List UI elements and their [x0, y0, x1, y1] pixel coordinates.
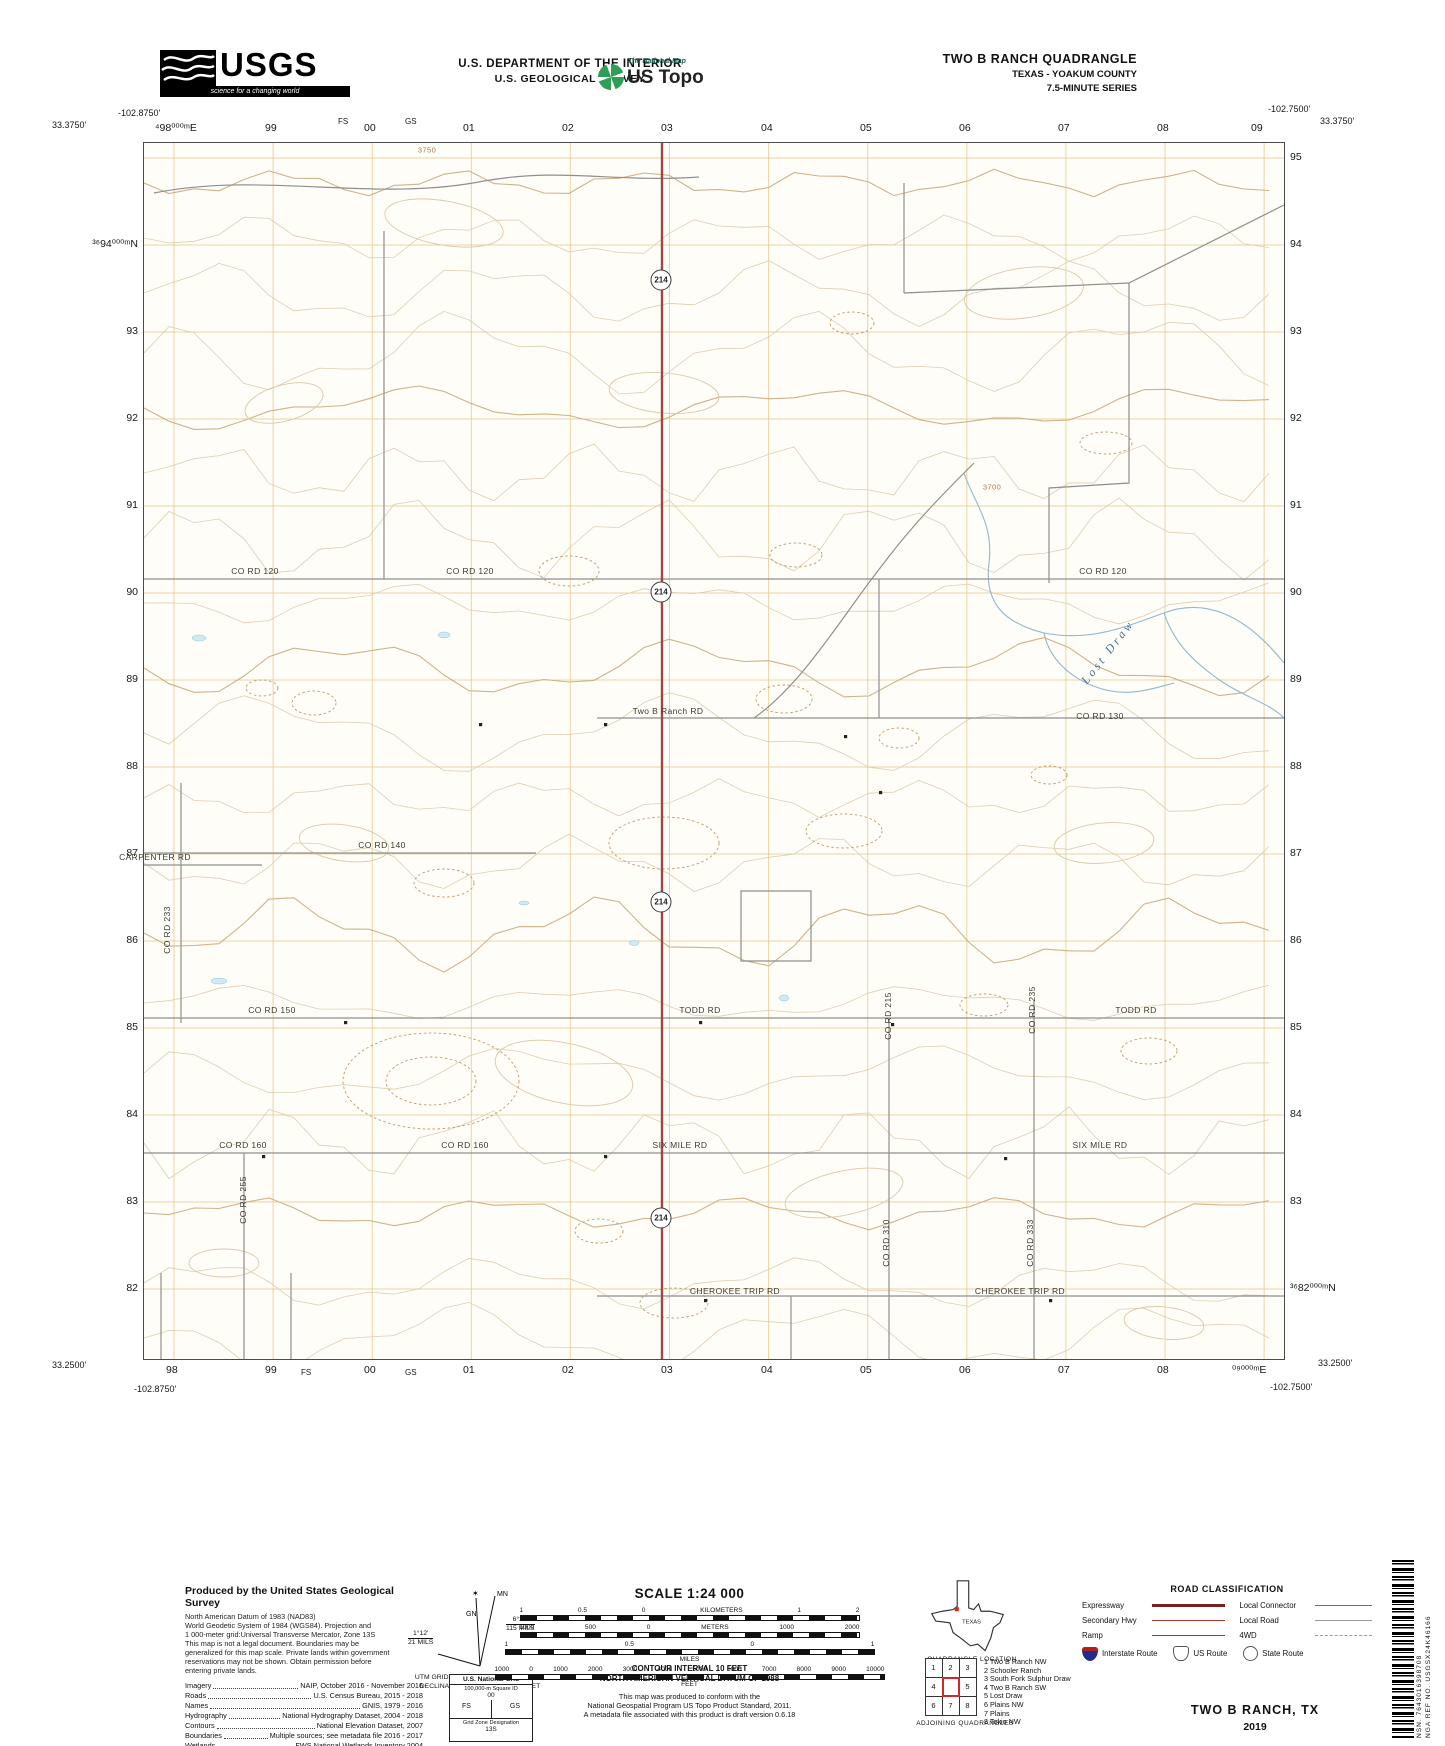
credits-line: This map is not a legal document. Bounda…: [185, 1639, 423, 1648]
grid-label-right: 87: [1290, 847, 1302, 859]
adjoining-cell: 8: [959, 1696, 977, 1716]
grid-label-top: 09: [1251, 122, 1263, 134]
production-credits: Produced by the United States Geological…: [185, 1585, 423, 1746]
corner-coord-tl-lon: -102.8750': [118, 108, 160, 118]
route-shield-legend: Interstate RouteUS RouteState Route: [1082, 1646, 1372, 1661]
state-route-legend: State Route: [1243, 1646, 1303, 1661]
grid-label-left: 85: [58, 1021, 138, 1033]
credits-source-row: ImageryNAIP, October 2016 - November 201…: [185, 1681, 423, 1691]
grid-label-top: 05: [860, 122, 872, 134]
grid-north-label: GN: [466, 1611, 477, 1618]
gn-declination: 1°12' 21 MILS: [408, 1630, 433, 1647]
usng-zone-label: Grid Zone Designation: [450, 1718, 532, 1726]
corner-coord-br-lon: -102.7500': [1270, 1382, 1312, 1392]
credits-line: World Geodetic System of 1984 (WGS84). P…: [185, 1621, 423, 1630]
credits-line: 1 000-meter grid:Universal Transverse Me…: [185, 1630, 423, 1639]
us-shield-icon: [1173, 1646, 1189, 1661]
credits-source-row: RoadsU.S. Census Bureau, 2015 - 2018: [185, 1691, 423, 1701]
corner-coord-tl-lat: 33.3750': [52, 120, 86, 130]
standard-note-line: This map was produced to conform with th…: [492, 1692, 887, 1701]
corner-coord-br-lat: 33.2500': [1318, 1358, 1352, 1368]
grid-label-right: 84: [1290, 1108, 1302, 1120]
texas-label: TEXAS: [962, 1620, 981, 1626]
grid-label-right: 86: [1290, 934, 1302, 946]
grid-label-left: 90: [58, 586, 138, 598]
adjoining-center-cell: [942, 1677, 960, 1697]
grid-label-left: 91: [58, 499, 138, 511]
grid-label-top: ⁴98⁰⁰⁰ᵐE: [155, 122, 197, 134]
contour-interval-note: CONTOUR INTERVAL 10 FEETNORTH AMERICAN V…: [492, 1664, 887, 1684]
credits-source-row: BoundariesMultiple sources; see metadata…: [185, 1731, 423, 1741]
road-class-row: ExpresswayLocal Connector: [1082, 1601, 1372, 1610]
contour-note-line: CONTOUR INTERVAL 10 FEET: [492, 1664, 887, 1674]
grid-label-left: ³⁶94⁰⁰⁰ᵐN: [58, 238, 138, 250]
standard-note-line: A metadata file associated with this pro…: [492, 1710, 887, 1719]
grid-label-right: 83: [1290, 1195, 1302, 1207]
product-standard-note: This map was produced to conform with th…: [492, 1692, 887, 1719]
corner-coord-tr-lat: 33.3750': [1320, 116, 1354, 126]
usng-zone: 13S: [450, 1726, 532, 1733]
grid-label-top: 03: [661, 122, 673, 134]
grid-label-left: 87: [58, 847, 138, 859]
usng-square-fs: FS: [462, 1703, 471, 1710]
barcode: [1392, 1560, 1414, 1738]
adjoining-cell: 5: [959, 1677, 977, 1697]
grid-label-top: FS: [338, 117, 348, 126]
usgs-waves-icon: [160, 50, 216, 86]
scale-bar: 10.501MILES: [505, 1641, 875, 1663]
interstate-route-legend: Interstate Route: [1082, 1647, 1157, 1661]
grid-label-top: 00: [364, 122, 376, 134]
grid-label-right: 94: [1290, 238, 1302, 250]
adjoining-quadrangles-caption: ADJOINING QUADRANGLES: [905, 1720, 1025, 1727]
grid-label-bottom: 02: [562, 1364, 574, 1376]
adjoining-quadrangles-grid: 12345678: [925, 1658, 976, 1715]
grid-label-right: 89: [1290, 673, 1302, 685]
adjoining-cell: 4: [925, 1677, 943, 1697]
us-route-legend: US Route: [1173, 1646, 1227, 1661]
topo-map-graphic: [144, 143, 1284, 1359]
credits-line: reservations may not be shown. Obtain pe…: [185, 1657, 423, 1666]
grid-label-right: 92: [1290, 412, 1302, 424]
grid-label-bottom: 06: [959, 1364, 971, 1376]
grid-label-left: 93: [58, 325, 138, 337]
grid-label-bottom: 99: [265, 1364, 277, 1376]
grid-label-right: 85: [1290, 1021, 1302, 1033]
usgs-tagline: science for a changing world: [160, 86, 350, 97]
adjoining-cell: 7: [942, 1696, 960, 1716]
scale-bar: 10.50KILOMETERS12: [520, 1607, 860, 1621]
credits-sources: ImageryNAIP, October 2016 - November 201…: [185, 1681, 423, 1746]
road-classification-legend: ROAD CLASSIFICATION ExpresswayLocal Conn…: [1082, 1584, 1372, 1661]
corner-coord-bl-lat: 33.2500': [52, 1360, 86, 1370]
quad-name: TWO B RANCH QUADRANGLE: [835, 52, 1137, 66]
nga-ref-number: NGA REF NO. USGSX24K46166: [1425, 1560, 1432, 1738]
grid-label-left: 82: [58, 1282, 138, 1294]
standard-note-line: National Geospatial Program US Topo Prod…: [492, 1701, 887, 1710]
quadrangle-title: TWO B RANCH QUADRANGLE TEXAS - YOAKUM CO…: [835, 52, 1137, 94]
ustopo-label: US Topo: [627, 67, 704, 89]
road-class-row: Ramp4WD: [1082, 1631, 1372, 1640]
adjoining-cell: 3: [959, 1658, 977, 1678]
grid-label-right: 88: [1290, 760, 1302, 772]
quad-state-county: TEXAS - YOAKUM COUNTY: [835, 69, 1137, 80]
grid-label-bottom: ⁰⁹⁰⁰⁰ᵐE: [1232, 1364, 1266, 1376]
credits-source-row: HydrographyNational Hydrography Dataset,…: [185, 1711, 423, 1721]
grid-label-left: 88: [58, 760, 138, 772]
adjoining-cell: 6: [925, 1696, 943, 1716]
corner-coord-tr-lon: -102.7500': [1268, 104, 1310, 114]
grid-label-right: 90: [1290, 586, 1302, 598]
dept-line2: U.S. GEOLOGICAL SURVEY: [360, 73, 780, 85]
sheet-year: 2019: [1105, 1721, 1405, 1733]
grid-label-top: 07: [1058, 122, 1070, 134]
grid-label-right: ³⁶82⁰⁰⁰ᵐN: [1290, 1282, 1336, 1294]
credits-lines: North American Datum of 1983 (NAD83)Worl…: [185, 1612, 423, 1675]
grid-label-bottom: 08: [1157, 1364, 1169, 1376]
usgs-logo: USGS science for a changing world: [160, 50, 350, 96]
national-map-label: The National Map: [628, 58, 686, 65]
scale-bar: 10005000METERS10002000: [520, 1624, 860, 1638]
grid-label-bottom: 01: [463, 1364, 475, 1376]
road-class-title: ROAD CLASSIFICATION: [1082, 1584, 1372, 1594]
grid-label-right: 91: [1290, 499, 1302, 511]
grid-label-top: 02: [562, 122, 574, 134]
grid-label-bottom: GS: [405, 1368, 417, 1377]
state-shield-icon: [1243, 1646, 1258, 1661]
usgs-topo-sheet: USGS science for a changing world U.S. D…: [0, 0, 1445, 1746]
grid-label-left: 86: [58, 934, 138, 946]
grid-label-top: 08: [1157, 122, 1169, 134]
credits-title: Produced by the United States Geological…: [185, 1585, 423, 1609]
grid-label-bottom: 07: [1058, 1364, 1070, 1376]
true-north-star: ✶: [472, 1589, 479, 1598]
grid-label-top: 06: [959, 122, 971, 134]
grid-label-bottom: 00: [364, 1364, 376, 1376]
interstate-shield-icon: [1082, 1647, 1098, 1661]
road-class-rows: ExpresswayLocal ConnectorSecondary HwyLo…: [1082, 1601, 1372, 1640]
grid-label-bottom: 05: [860, 1364, 872, 1376]
adjoining-quadrangles-list: 1 Two B Ranch NW2 Schooler Ranch3 South …: [984, 1658, 1114, 1727]
credits-line: North American Datum of 1983 (NAD83): [185, 1612, 423, 1621]
adjoining-cell: 2: [942, 1658, 960, 1678]
road-class-row: Secondary HwyLocal Road: [1082, 1616, 1372, 1625]
dept-line1: U.S. DEPARTMENT OF THE INTERIOR: [360, 58, 780, 70]
credits-source-row: ContoursNational Elevation Dataset, 2007: [185, 1721, 423, 1731]
usgs-wordmark: USGS: [220, 46, 318, 84]
quad-series: 7.5-MINUTE SERIES: [835, 83, 1137, 94]
grid-label-right: 93: [1290, 325, 1302, 337]
grid-label-left: 92: [58, 412, 138, 424]
grid-label-bottom: 04: [761, 1364, 773, 1376]
grid-label-left: 83: [58, 1195, 138, 1207]
grid-label-top: 01: [463, 122, 475, 134]
grid-label-right: 95: [1290, 151, 1302, 163]
texas-outline: TEXAS: [912, 1580, 1032, 1654]
scale-title: SCALE 1:24 000: [492, 1586, 887, 1601]
corner-coord-bl-lon: -102.8750': [134, 1384, 176, 1394]
credits-source-row: NamesGNIS, 1979 - 2016: [185, 1701, 423, 1711]
quad-location-dot: [955, 1607, 959, 1611]
contour-note-line: NORTH AMERICAN VERTICAL DATUM OF 1988: [492, 1674, 887, 1684]
grid-label-top: 04: [761, 122, 773, 134]
sheet-title: TWO B RANCH, TX 2019: [1105, 1703, 1405, 1733]
department-heading: U.S. DEPARTMENT OF THE INTERIOR U.S. GEO…: [360, 58, 780, 85]
adjoining-cell: 1: [925, 1658, 943, 1678]
credits-line: entering private lands.: [185, 1666, 423, 1675]
nsn-number: NSN. 7643016398708: [1416, 1560, 1423, 1738]
credits-line: generalized for this map scale. Private …: [185, 1648, 423, 1657]
grid-label-bottom: 98: [166, 1364, 178, 1376]
grid-label-top: GS: [405, 117, 417, 126]
quadrangle-location: TEXAS QUADRANGLE LOCATION: [912, 1580, 1032, 1666]
grid-label-left: 89: [58, 673, 138, 685]
map-area: [143, 142, 1285, 1360]
national-map-icon: [598, 64, 624, 90]
grid-label-top: 99: [265, 122, 277, 134]
sheet-name: TWO B RANCH, TX: [1105, 1703, 1405, 1717]
credits-source-row: WetlandsFWS National Wetlands Inventory …: [185, 1741, 423, 1746]
grid-label-left: 84: [58, 1108, 138, 1120]
grid-label-bottom: 03: [661, 1364, 673, 1376]
grid-label-bottom: FS: [301, 1368, 311, 1377]
